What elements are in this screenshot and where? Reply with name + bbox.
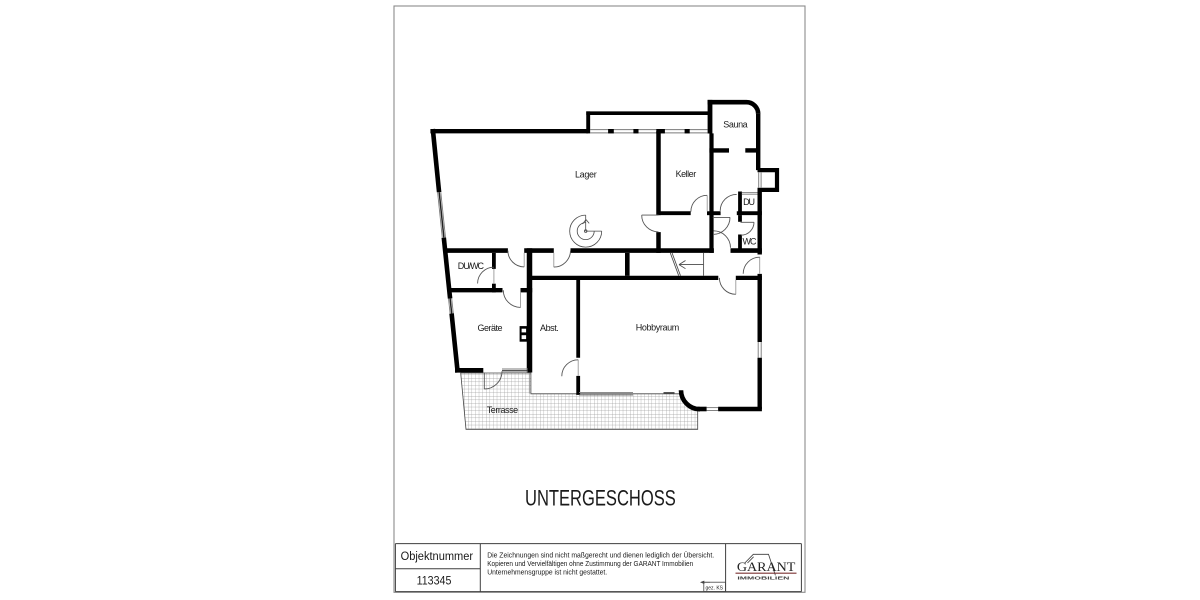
svg-text:Abst.: Abst. (540, 323, 559, 333)
svg-text:DU/WC: DU/WC (458, 261, 485, 271)
svg-text:Geräte: Geräte (478, 323, 503, 333)
svg-text:Lager: Lager (575, 169, 597, 179)
svg-text:Sauna: Sauna (723, 120, 747, 130)
svg-text:Hobbyraum: Hobbyraum (636, 323, 679, 333)
svg-text:IMMOBILIEN: IMMOBILIEN (737, 575, 790, 580)
svg-text:DU: DU (743, 197, 755, 207)
svg-text:Terrasse: Terrasse (487, 405, 519, 415)
svg-text:UNTERGESCHOSS: UNTERGESCHOSS (525, 486, 676, 511)
svg-text:Keller: Keller (676, 169, 697, 179)
svg-text:gez. KS: gez. KS (706, 586, 724, 592)
svg-text:Objektnummer: Objektnummer (401, 551, 474, 563)
svg-text:Unternehmensgruppe ist nicht g: Unternehmensgruppe ist nicht gestattet. (487, 568, 607, 577)
svg-text:113345: 113345 (417, 576, 452, 588)
svg-text:GARANT: GARANT (737, 559, 796, 574)
svg-text:WC: WC (743, 237, 758, 247)
